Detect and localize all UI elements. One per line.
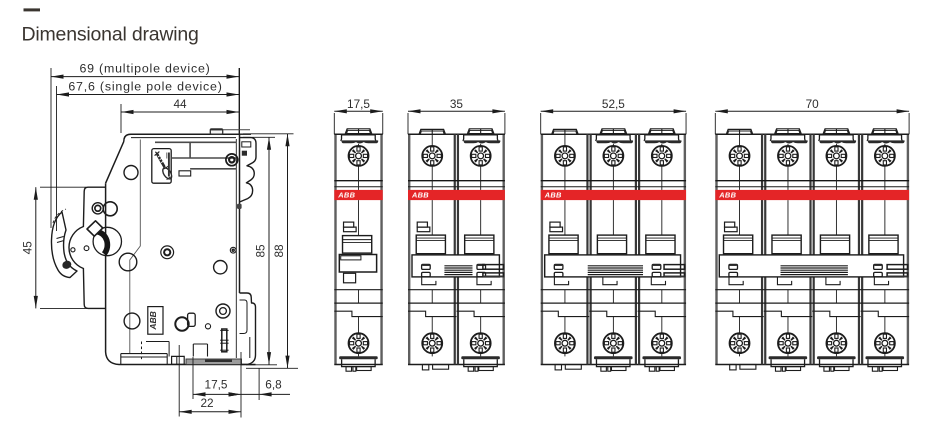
svg-text:ABB: ABB [411,191,429,200]
svg-text:69 (multipole device): 69 (multipole device) [79,62,210,76]
svg-text:67,6 (single pole device): 67,6 (single pole device) [68,79,222,93]
svg-text:35: 35 [450,97,464,111]
svg-text:52,5: 52,5 [602,97,625,111]
svg-text:17,5: 17,5 [347,97,370,111]
svg-text:88: 88 [272,244,286,258]
svg-text:ABB: ABB [718,191,736,200]
svg-text:22: 22 [200,396,213,410]
svg-text:45: 45 [20,241,34,255]
svg-text:ABB: ABB [544,191,562,200]
svg-text:17,5: 17,5 [205,378,228,392]
svg-text:85: 85 [254,244,268,258]
svg-text:Dimensional drawing: Dimensional drawing [22,24,199,46]
svg-text:44: 44 [173,97,187,111]
svg-text:ABB: ABB [337,191,355,200]
svg-text:70: 70 [806,97,820,111]
svg-text:ABB: ABB [148,311,158,330]
svg-text:6,8: 6,8 [265,378,282,392]
